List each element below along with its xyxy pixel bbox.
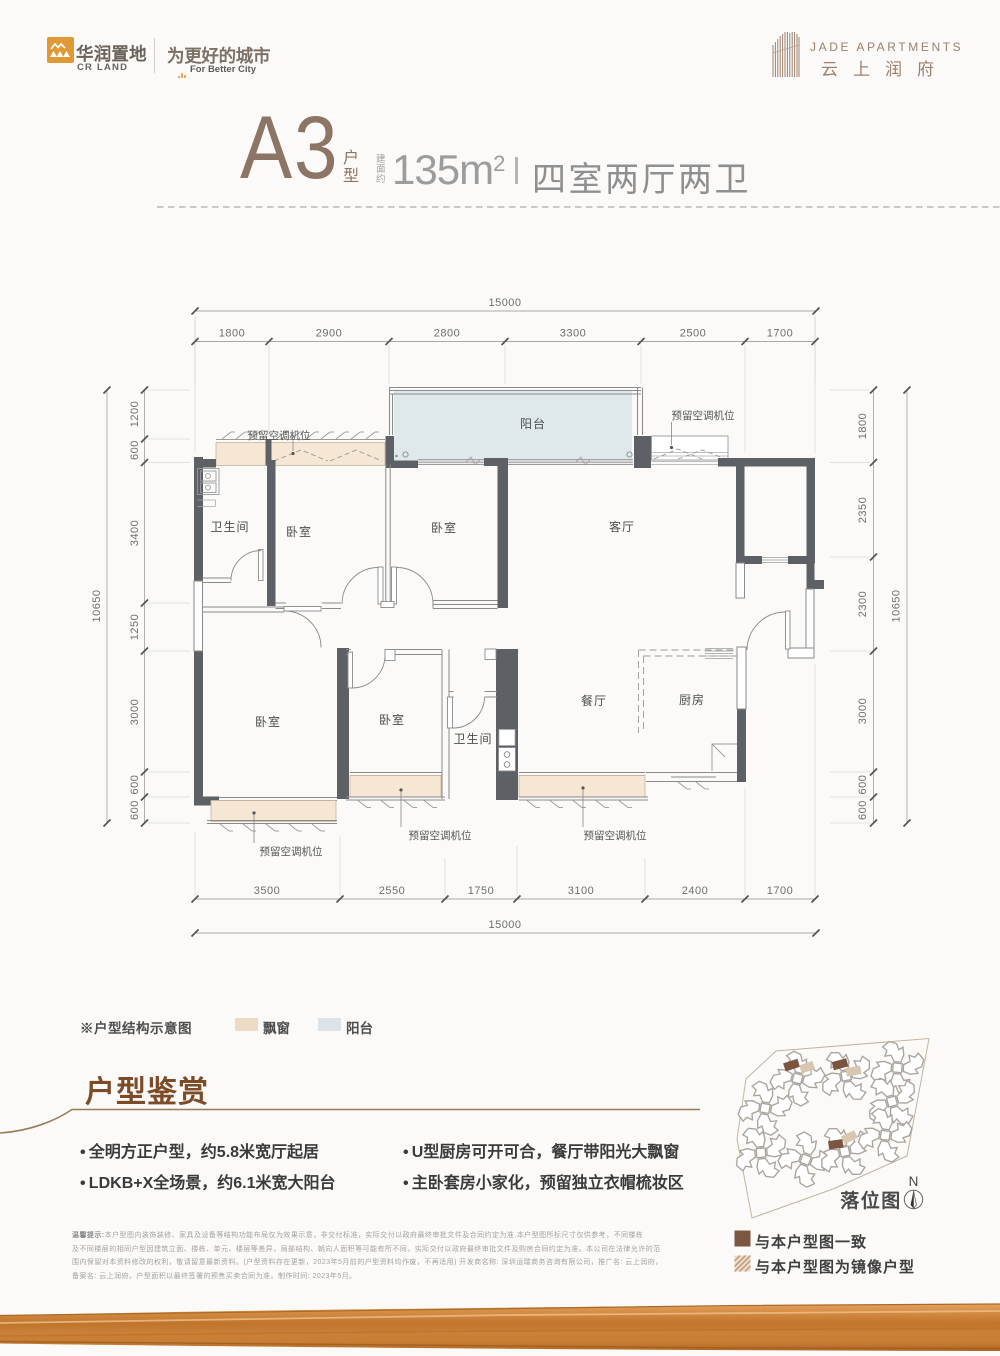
svg-text:10650: 10650 bbox=[91, 589, 103, 622]
svg-text:1700: 1700 bbox=[767, 328, 793, 340]
svg-text:1250: 1250 bbox=[129, 614, 141, 640]
svg-text:600: 600 bbox=[129, 800, 141, 820]
svg-text:2300: 2300 bbox=[857, 591, 869, 617]
svg-text:3300: 3300 bbox=[560, 328, 586, 340]
svg-text:预留空调机位: 预留空调机位 bbox=[248, 429, 311, 442]
svg-text:15000: 15000 bbox=[488, 919, 521, 931]
svg-text:餐厅: 餐厅 bbox=[581, 693, 607, 708]
svg-text:N: N bbox=[909, 1174, 919, 1189]
svg-text:卧室: 卧室 bbox=[431, 520, 457, 535]
svg-text:厨房: 厨房 bbox=[679, 692, 705, 707]
svg-text:预留空调机位: 预留空调机位 bbox=[260, 845, 323, 858]
svg-text:预留空调机位: 预留空调机位 bbox=[409, 829, 472, 842]
svg-text:1750: 1750 bbox=[468, 885, 494, 897]
svg-text:600: 600 bbox=[129, 440, 141, 460]
svg-text:卧室: 卧室 bbox=[255, 714, 281, 729]
svg-text:预留空调机位: 预留空调机位 bbox=[672, 409, 735, 422]
svg-text:阳台: 阳台 bbox=[520, 416, 546, 431]
svg-text:1200: 1200 bbox=[129, 401, 141, 427]
svg-text:3100: 3100 bbox=[568, 885, 594, 897]
svg-text:15000: 15000 bbox=[488, 297, 521, 309]
svg-text:600: 600 bbox=[857, 800, 869, 820]
svg-text:落位图: 落位图 bbox=[840, 1189, 902, 1212]
svg-text:2800: 2800 bbox=[434, 328, 460, 340]
svg-text:10650: 10650 bbox=[891, 589, 903, 622]
svg-text:3500: 3500 bbox=[254, 885, 280, 897]
svg-text:卧室: 卧室 bbox=[379, 712, 405, 727]
svg-text:3000: 3000 bbox=[857, 698, 869, 724]
svg-text:3400: 3400 bbox=[129, 520, 141, 546]
svg-text:600: 600 bbox=[857, 775, 869, 795]
svg-text:客厅: 客厅 bbox=[609, 519, 635, 534]
svg-text:2550: 2550 bbox=[379, 885, 405, 897]
svg-text:2400: 2400 bbox=[682, 885, 708, 897]
svg-text:2350: 2350 bbox=[857, 497, 869, 523]
svg-text:1700: 1700 bbox=[767, 885, 793, 897]
svg-text:2900: 2900 bbox=[316, 328, 342, 340]
svg-text:卧室: 卧室 bbox=[286, 524, 312, 539]
svg-text:3000: 3000 bbox=[129, 699, 141, 725]
svg-text:600: 600 bbox=[129, 775, 141, 795]
svg-text:卫生间: 卫生间 bbox=[453, 732, 492, 746]
svg-text:1800: 1800 bbox=[219, 328, 245, 340]
svg-text:2500: 2500 bbox=[680, 328, 706, 340]
svg-text:卫生间: 卫生间 bbox=[210, 520, 249, 534]
svg-text:1800: 1800 bbox=[857, 413, 869, 439]
svg-text:预留空调机位: 预留空调机位 bbox=[584, 829, 647, 842]
